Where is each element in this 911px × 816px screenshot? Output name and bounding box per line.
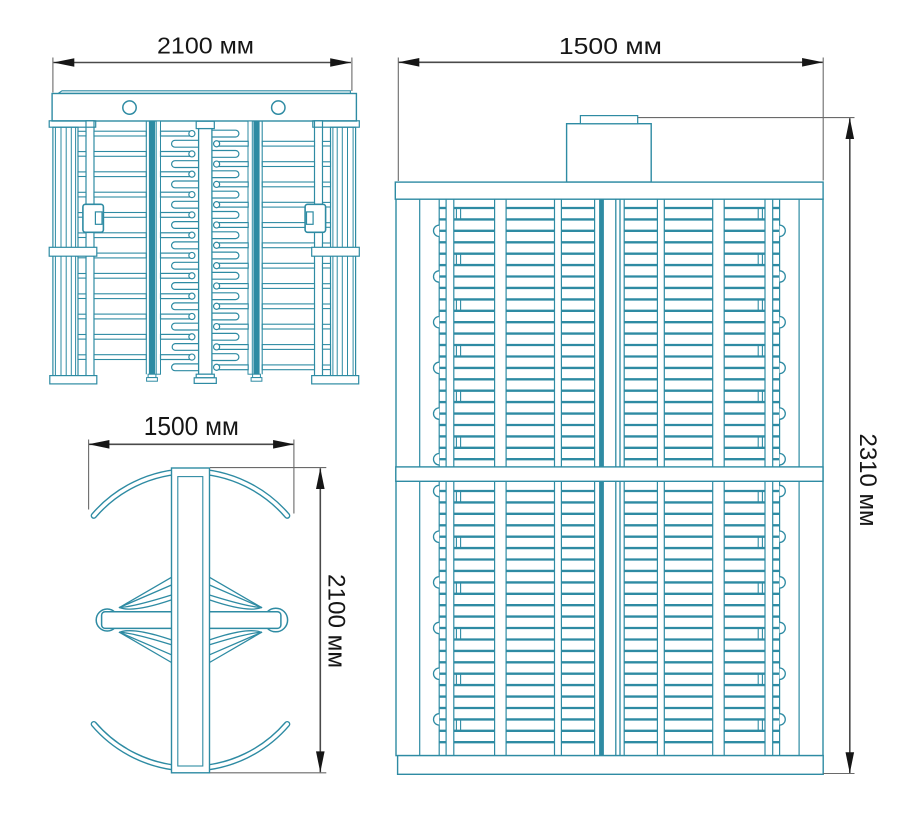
svg-text:2100 мм: 2100 мм [323, 574, 350, 668]
svg-text:1500 мм: 1500 мм [144, 411, 239, 441]
svg-text:2310 мм: 2310 мм [854, 434, 881, 527]
svg-text:2100 мм: 2100 мм [157, 33, 254, 59]
svg-text:1500 мм: 1500 мм [559, 33, 662, 59]
